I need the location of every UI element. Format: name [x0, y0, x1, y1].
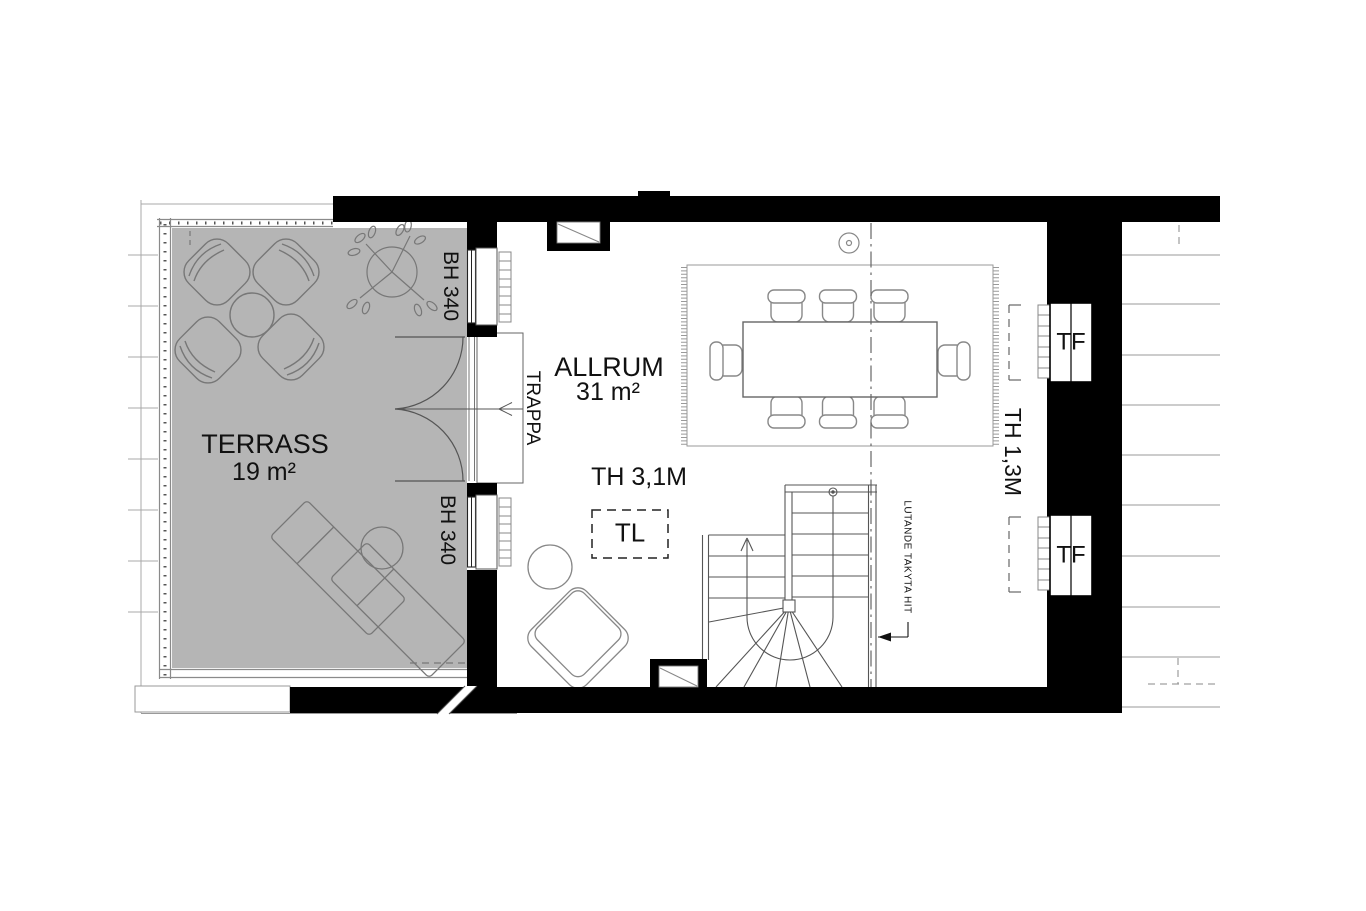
radiator — [1038, 305, 1050, 378]
wall-bottom — [290, 687, 1122, 713]
dining-chair — [768, 396, 805, 428]
sloping-roof-leader — [878, 622, 908, 642]
room-area-allrum: 31 m² — [576, 379, 640, 405]
dining-chair — [820, 290, 857, 322]
dining-chair — [768, 290, 805, 322]
terrace-window-lower — [468, 495, 512, 569]
dining-chair — [871, 396, 908, 428]
radiator — [499, 252, 511, 322]
sloping-roof-label: LUTANDE TAKYTA HIT — [901, 500, 912, 613]
window-niche-top — [547, 222, 610, 251]
room-label-terrass: TERRASS — [201, 430, 329, 458]
staircase — [703, 485, 878, 687]
dining-chair — [820, 396, 857, 428]
bh-label-lower: BH 340 — [436, 495, 458, 565]
dining-table — [743, 322, 937, 397]
radiator — [499, 498, 511, 566]
ceiling-light — [839, 233, 859, 253]
lounge-armchair — [523, 545, 633, 693]
th13-label: TH 1,3M — [1001, 408, 1025, 496]
wall-terrace-4 — [467, 570, 497, 687]
wall-top-pier — [638, 191, 670, 199]
tl-label: TL — [615, 519, 645, 546]
dining-chair — [710, 342, 742, 380]
dining-chair — [938, 342, 970, 380]
room-area-terrass: 19 m² — [232, 459, 296, 485]
stair-walkline — [741, 488, 837, 660]
wall-right — [1047, 222, 1122, 713]
tf-label-upper: TF — [1056, 329, 1085, 354]
tf-label-lower: TF — [1056, 542, 1085, 567]
terrace-window-upper — [468, 248, 512, 325]
wall-terrace-1 — [467, 222, 497, 250]
wall-top — [333, 196, 1220, 222]
radiator — [1038, 517, 1050, 590]
ceiling-height-label: TH 3,1M — [591, 464, 687, 490]
armchair-side-table — [528, 545, 572, 589]
neighbor-context-right — [1122, 213, 1220, 707]
trappa-label: TRAPPA — [522, 371, 542, 446]
bh-label-upper: BH 340 — [439, 251, 461, 321]
floorplan-canvas: TERRASS 19 m² ALLRUM 31 m² TH 3,1M TL TF… — [0, 0, 1366, 911]
window-niche-bottom — [650, 659, 707, 687]
dining-chair — [871, 290, 908, 322]
